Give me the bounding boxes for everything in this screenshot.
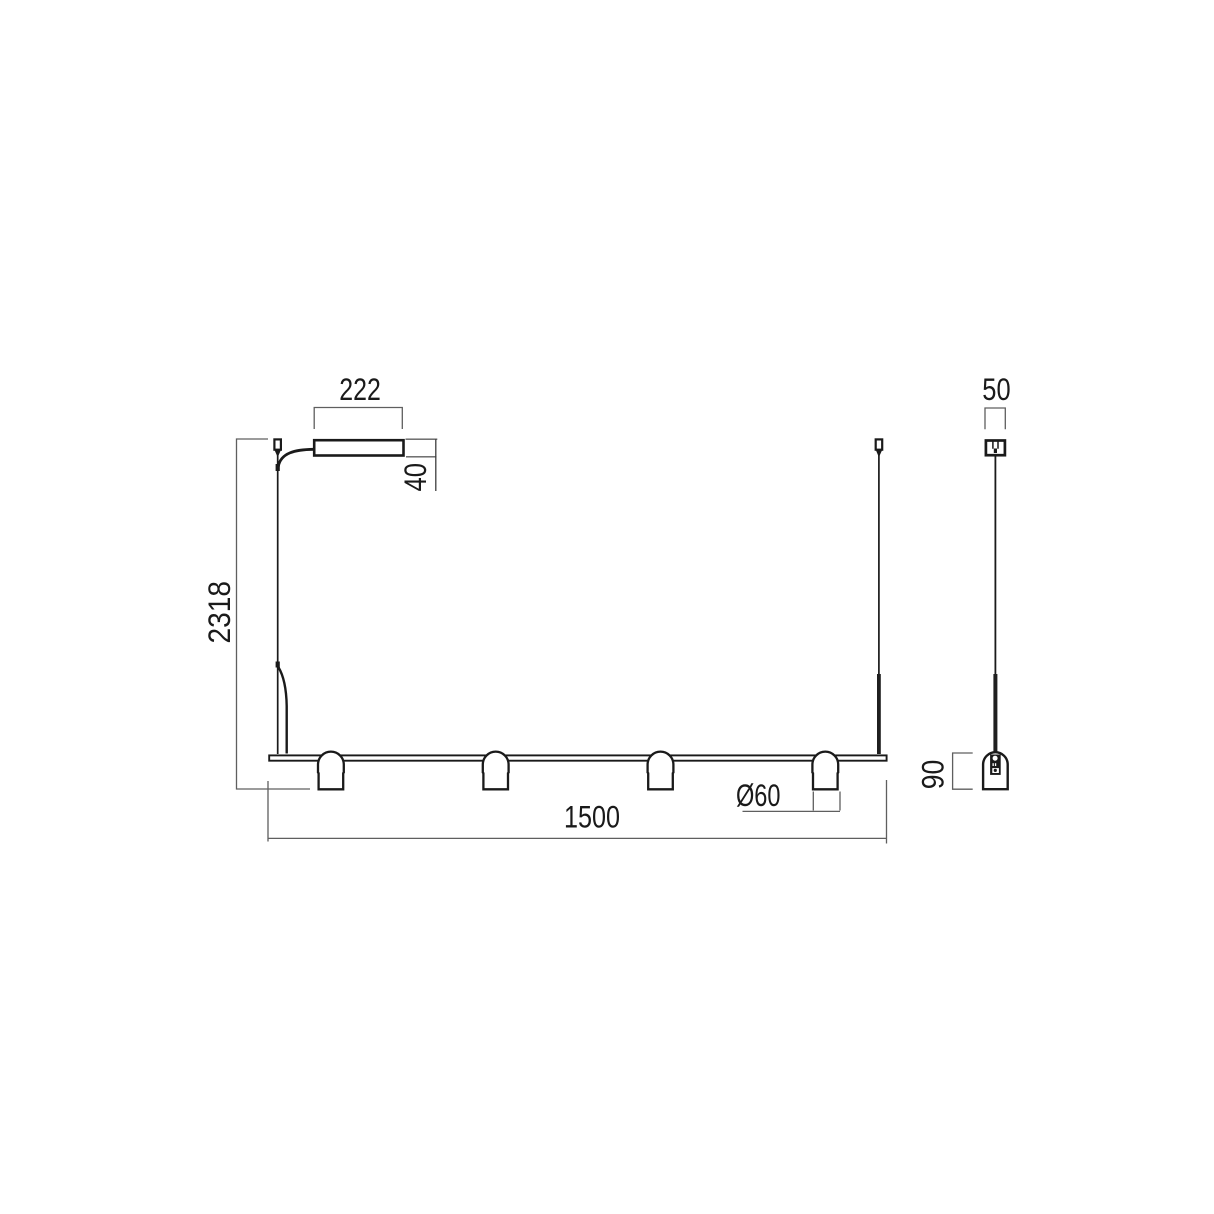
svg-text:90: 90 — [914, 760, 950, 790]
svg-text:2318: 2318 — [201, 581, 237, 644]
svg-text:222: 222 — [339, 371, 381, 407]
svg-text:50: 50 — [982, 371, 1010, 407]
svg-text:Ø60: Ø60 — [736, 777, 781, 813]
svg-text:1500: 1500 — [564, 799, 620, 835]
svg-text:40: 40 — [397, 463, 433, 492]
